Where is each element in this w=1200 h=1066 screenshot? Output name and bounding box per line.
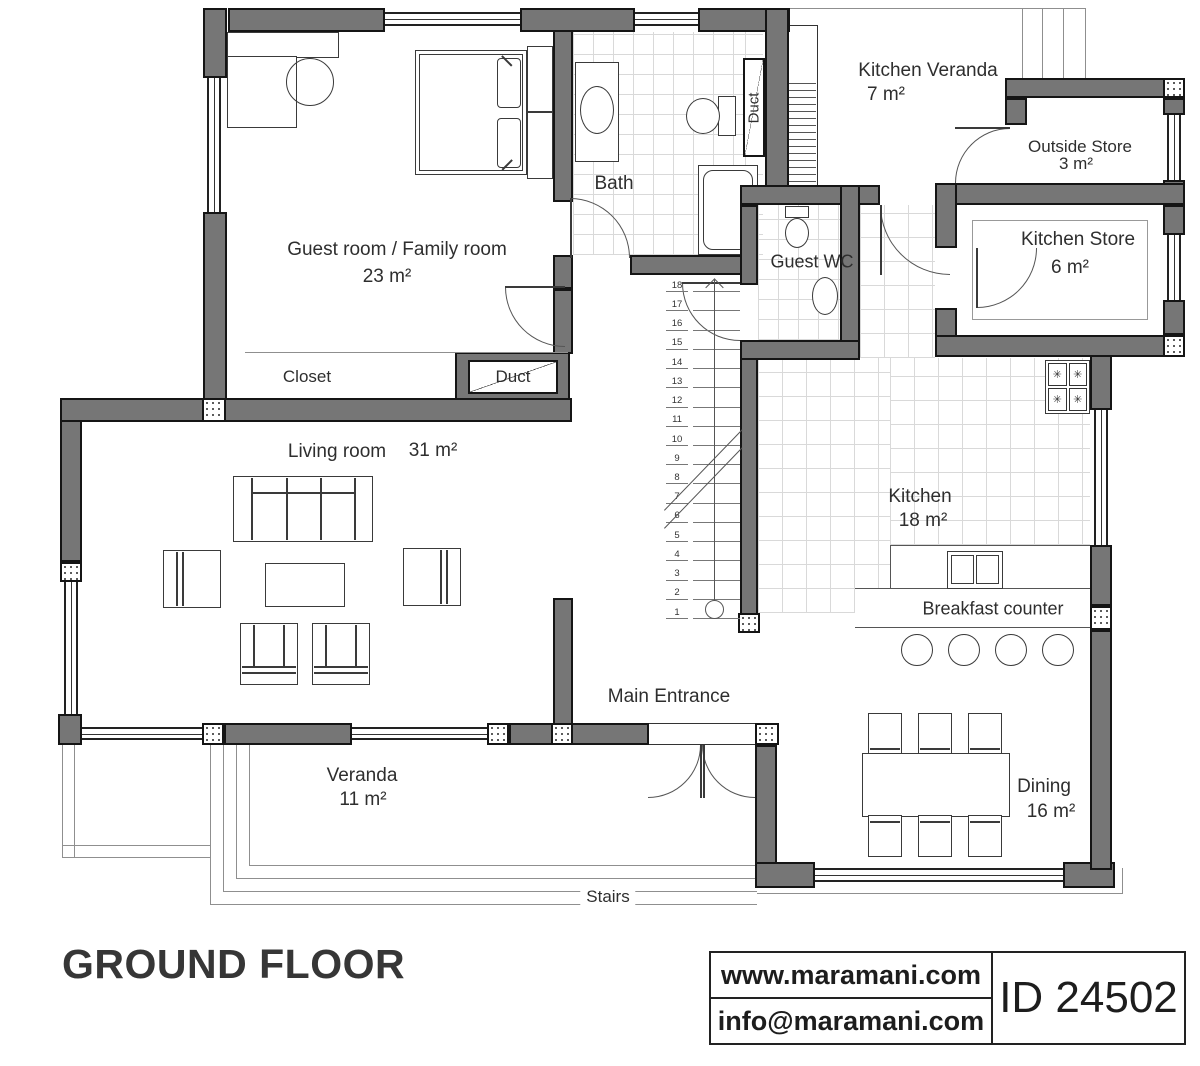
room-label-guest: Guest room / Family room <box>287 239 507 261</box>
label-breakfast-counter: Breakfast counter <box>922 599 1063 620</box>
wall-segment <box>553 30 573 202</box>
desk <box>227 32 339 58</box>
entrance-opening <box>649 723 756 745</box>
wall-segment <box>740 340 860 360</box>
window <box>207 78 221 212</box>
room-label-duct-upper: Duct <box>746 93 763 124</box>
kitchen-floor <box>758 358 890 613</box>
sofa-seat-line <box>286 478 288 540</box>
room-area-veranda: 11 m² <box>339 789 386 811</box>
footer-contacts: www.maramani.com info@maramani.com <box>711 953 993 1043</box>
bed-headboard-line <box>528 111 552 113</box>
bed-headboard <box>527 46 553 179</box>
window <box>385 12 520 26</box>
stair-step: 3 <box>666 561 740 580</box>
door-leaf <box>505 286 565 288</box>
room-area-guest: 23 m² <box>363 266 412 288</box>
chair-line <box>870 748 900 750</box>
column-marker <box>1090 606 1112 630</box>
wall-segment <box>1163 205 1185 235</box>
wall-segment <box>1090 355 1112 410</box>
website-link[interactable]: www.maramani.com <box>711 953 991 999</box>
room-label-living: Living room <box>288 441 386 463</box>
wall-segment <box>1005 98 1027 125</box>
outdoor-step <box>1085 8 1086 78</box>
floor-plan: ✳ ✳ ✳ ✳ <box>0 0 1200 1066</box>
email-link[interactable]: info@maramani.com <box>711 999 991 1043</box>
door-leaf <box>570 198 572 258</box>
kitchen-sink-basin <box>951 555 974 584</box>
column-marker <box>755 723 779 745</box>
veranda-step <box>62 857 210 858</box>
armchair-line <box>440 550 442 604</box>
chair-line <box>970 821 1000 823</box>
wall-segment <box>740 205 758 285</box>
column-marker <box>487 723 509 745</box>
sofa-arm-line <box>251 478 253 540</box>
wall-segment <box>1005 78 1185 98</box>
room-label-closet: Closet <box>283 367 331 387</box>
bath-sink <box>580 86 614 134</box>
stair-step: 13 <box>666 369 740 388</box>
stair-step: 12 <box>666 388 740 407</box>
armchair <box>312 623 370 685</box>
dining-step <box>757 893 1123 894</box>
outdoor-step <box>1042 8 1043 78</box>
armchair-line <box>182 552 184 606</box>
toilet-tank <box>718 96 736 136</box>
wall-segment <box>228 8 385 32</box>
door-leaf <box>700 745 702 798</box>
chair-line <box>970 748 1000 750</box>
column-marker <box>202 723 224 745</box>
sofa-arm-line <box>354 478 356 540</box>
burner-icon: ✳ <box>1069 363 1088 386</box>
toilet-tank <box>785 206 809 218</box>
armchair-line <box>325 625 327 667</box>
door-arc <box>505 287 565 347</box>
window <box>82 727 202 740</box>
stove-burners: ✳ ✳ ✳ ✳ <box>1046 361 1089 413</box>
stair-step: 5 <box>666 523 740 542</box>
wall-segment <box>203 8 227 78</box>
wall-segment <box>1090 630 1112 870</box>
armchair-line <box>176 552 178 606</box>
stair-centerline <box>714 280 715 610</box>
page-title: GROUND FLOOR <box>62 941 405 988</box>
stair-start-circle <box>705 600 724 619</box>
burner-icon: ✳ <box>1048 363 1067 386</box>
window <box>352 727 487 740</box>
stair-step: 9 <box>666 446 740 465</box>
chair-line <box>870 821 900 823</box>
label-main-entrance: Main Entrance <box>608 686 731 708</box>
door-arc <box>955 128 1010 183</box>
column-marker <box>738 613 760 633</box>
wall-segment <box>203 212 227 402</box>
stair-step: 14 <box>666 350 740 369</box>
wall-segment <box>630 255 758 275</box>
wall-segment <box>1090 545 1112 606</box>
veranda-step <box>62 845 210 846</box>
armchair <box>163 550 221 608</box>
window <box>64 582 78 714</box>
door-leaf <box>703 745 705 798</box>
toilet-icon <box>686 98 720 134</box>
dining-step <box>1122 868 1123 894</box>
wall-segment <box>755 745 777 867</box>
stair-step: 2 <box>666 581 740 600</box>
stair-step: 11 <box>666 408 740 427</box>
armchair <box>403 548 461 606</box>
coffee-table <box>265 563 345 607</box>
chair-line <box>920 748 950 750</box>
window <box>635 12 698 26</box>
window <box>815 868 1063 882</box>
room-label-duct-lower: Duct <box>496 367 531 387</box>
wall-segment <box>224 723 352 745</box>
wall-segment <box>935 335 1185 357</box>
room-label-kitchen-veranda: Kitchen Veranda <box>858 60 997 82</box>
burner-icon: ✳ <box>1048 388 1067 411</box>
kitchen-sink-basin <box>976 555 999 584</box>
desk-chair <box>286 58 334 106</box>
wall-segment <box>520 8 635 32</box>
room-label-veranda: Veranda <box>327 765 398 787</box>
wall-segment <box>553 255 573 289</box>
stair-step: 16 <box>666 311 740 330</box>
armchair-line <box>253 625 255 667</box>
door-leaf <box>976 248 978 308</box>
window <box>1094 410 1108 545</box>
wall-segment <box>1163 98 1185 115</box>
stair-step: 1 <box>666 600 740 619</box>
door-leaf <box>880 205 882 275</box>
column-marker <box>202 398 226 422</box>
wall-segment <box>553 598 573 725</box>
kitchen-veranda-stairs-treads <box>788 83 816 185</box>
dining-table <box>862 753 1010 817</box>
wall-segment <box>509 723 649 745</box>
armchair-line <box>242 672 296 674</box>
armchair-line <box>446 550 448 604</box>
room-label-kitchen: Kitchen <box>888 486 951 508</box>
label-stairs: Stairs <box>580 887 635 907</box>
stair-step: 17 <box>666 292 740 311</box>
plan-id: ID 24502 <box>993 953 1184 1043</box>
bar-stool <box>1042 634 1074 666</box>
chair-line <box>920 821 950 823</box>
wall-segment <box>935 183 1185 205</box>
sofa-back-line <box>251 492 355 494</box>
sofa-seat-line <box>320 478 322 540</box>
armchair-line <box>283 625 285 667</box>
bed-pillow <box>497 58 521 108</box>
wall-segment <box>60 398 572 422</box>
wall-segment <box>840 185 860 360</box>
door-leaf <box>955 127 1010 129</box>
sofa <box>233 476 373 542</box>
wall-segment <box>1163 300 1185 335</box>
column-marker <box>551 723 573 745</box>
wall-segment <box>740 343 758 615</box>
toilet-icon <box>785 218 809 248</box>
bar-stool <box>995 634 1027 666</box>
armchair-line <box>314 672 368 674</box>
room-area-kitchen-veranda: 7 m² <box>867 84 905 106</box>
footer-box: www.maramani.com info@maramani.com ID 24… <box>709 951 1186 1045</box>
armchair <box>240 623 298 685</box>
bar-stool <box>901 634 933 666</box>
room-label-guest-wc: Guest WC <box>770 252 853 273</box>
window <box>1167 235 1181 300</box>
staircase-steps: 181716151413121110987654321 <box>666 273 740 619</box>
closet-line <box>245 352 568 353</box>
room-label-dining: Dining <box>1017 776 1071 798</box>
room-area-outside-store: 3 m² <box>1059 154 1093 174</box>
column-marker <box>60 562 82 582</box>
armchair-line <box>242 666 296 668</box>
wall-segment <box>765 8 789 192</box>
room-area-kitchen-store: 6 m² <box>1051 257 1089 279</box>
room-label-kitchen-store: Kitchen Store <box>1021 229 1135 251</box>
column-marker <box>1163 335 1185 357</box>
wall-segment <box>1163 180 1185 185</box>
column-marker <box>1163 78 1185 98</box>
veranda-step <box>74 745 75 858</box>
room-area-living: 31 m² <box>409 440 458 462</box>
bar-stool <box>948 634 980 666</box>
wall-segment <box>755 862 815 888</box>
room-area-kitchen: 18 m² <box>899 510 948 532</box>
room-label-bath: Bath <box>594 173 633 195</box>
wc-sink <box>812 277 838 315</box>
burner-icon: ✳ <box>1069 388 1088 411</box>
outdoor-step <box>1022 8 1023 78</box>
wall-segment <box>58 714 82 745</box>
room-area-dining: 16 m² <box>1027 801 1076 823</box>
desk <box>227 56 297 128</box>
kitchen-veranda-edge <box>788 8 1085 9</box>
stair-step: 15 <box>666 331 740 350</box>
stair-step: 4 <box>666 542 740 561</box>
stair-step: 18 <box>666 273 740 292</box>
window <box>1167 115 1181 180</box>
veranda-step <box>62 745 63 858</box>
armchair-line <box>355 625 357 667</box>
wall-segment <box>60 420 82 562</box>
armchair-line <box>314 666 368 668</box>
outdoor-step <box>1063 8 1064 78</box>
